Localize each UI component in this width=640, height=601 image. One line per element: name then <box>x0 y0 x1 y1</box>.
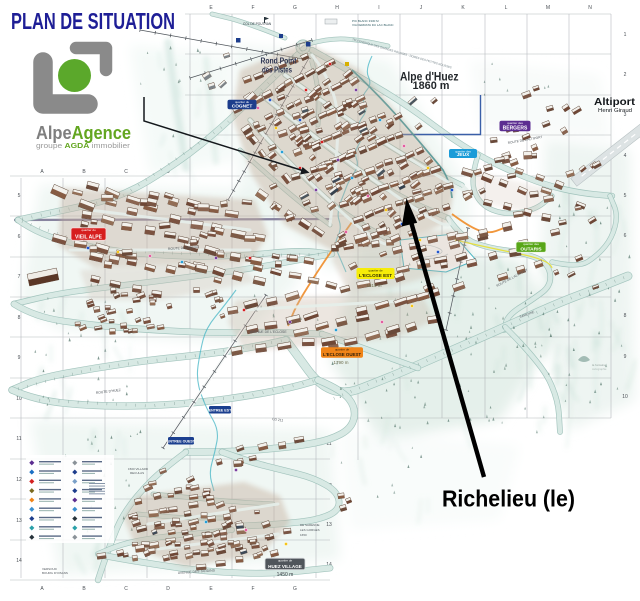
svg-text:N: N <box>588 5 592 11</box>
svg-text:5: 5 <box>624 193 627 199</box>
svg-text:AlpeAgence: AlpeAgence <box>36 123 131 143</box>
svg-text:quartier du: quartier du <box>81 228 96 232</box>
svg-text:F: F <box>251 5 254 11</box>
svg-text:VIA FERRATA DU LAC BLANC: VIA FERRATA DU LAC BLANC <box>352 23 394 27</box>
svg-text:Altiport: Altiport <box>594 97 636 108</box>
svg-text:1: 1 <box>624 32 627 38</box>
svg-text:VIEIL ALPE: VIEIL ALPE <box>75 234 103 240</box>
svg-text:6: 6 <box>18 234 21 240</box>
svg-text:14: 14 <box>16 558 22 564</box>
svg-text:1790 m: 1790 m <box>333 360 348 365</box>
svg-text:L: L <box>505 5 508 11</box>
svg-text:2: 2 <box>624 72 627 78</box>
svg-text:BERGERS: BERGERS <box>503 125 528 131</box>
svg-text:1650: 1650 <box>300 533 307 537</box>
svg-text:Rond Point: Rond Point <box>261 57 297 66</box>
svg-text:ENTREE EST: ENTREE EST <box>209 409 232 413</box>
svg-text:Henri Giraud: Henri Giraud <box>598 108 632 114</box>
svg-text:COL DE POUTRAN: COL DE POUTRAN <box>243 22 272 26</box>
svg-text:L'ECLOSE OUEST: L'ECLOSE OUEST <box>323 352 361 357</box>
svg-text:C: C <box>124 169 128 175</box>
svg-text:9: 9 <box>624 354 627 360</box>
svg-text:quartier de: quartier de <box>368 268 383 272</box>
svg-text:4: 4 <box>624 153 627 159</box>
svg-text:DE SARENNE: DE SARENNE <box>300 523 320 527</box>
svg-text:COGNET: COGNET <box>232 104 253 110</box>
svg-text:ENTREE OUEST: ENTREE OUEST <box>167 440 196 444</box>
svg-text:C: C <box>124 586 128 592</box>
svg-text:BOURG D'OISANS: BOURG D'OISANS <box>42 571 68 575</box>
svg-text:F: F <box>251 586 254 592</box>
svg-text:1450 m: 1450 m <box>277 572 294 578</box>
svg-text:quartier de: quartier de <box>278 559 293 563</box>
svg-text:10: 10 <box>622 394 628 400</box>
svg-text:RECULAS: RECULAS <box>130 471 144 475</box>
svg-text:8: 8 <box>18 315 21 321</box>
svg-text:L'ECLOSE EST: L'ECLOSE EST <box>359 273 392 278</box>
svg-text:des Pistes: des Pistes <box>262 66 292 75</box>
svg-text:I: I <box>378 5 379 11</box>
svg-text:groupe AGDA immobilier: groupe AGDA immobilier <box>36 143 131 150</box>
svg-text:AVENUE DE L'ECLOSE: AVENUE DE L'ECLOSE <box>250 330 287 334</box>
svg-text:9: 9 <box>18 355 21 361</box>
svg-text:6: 6 <box>624 233 627 239</box>
svg-text:12: 12 <box>16 477 22 483</box>
svg-text:quartier des: quartier des <box>523 242 539 246</box>
svg-text:1815 m: 1815 m <box>366 283 381 288</box>
svg-text:OUTARIS: OUTARIS <box>520 246 542 252</box>
svg-text:5: 5 <box>18 193 21 199</box>
svg-text:D: D <box>166 586 170 592</box>
svg-text:11: 11 <box>16 436 21 442</box>
svg-text:HUEZ VILLAGE: HUEZ VILLAGE <box>268 564 302 569</box>
svg-text:Richelieu (le): Richelieu (le) <box>442 486 575 512</box>
svg-text:13: 13 <box>16 518 22 524</box>
svg-text:G: G <box>293 5 297 11</box>
svg-text:LES GORGES: LES GORGES <box>300 528 320 532</box>
svg-text:8: 8 <box>624 313 627 319</box>
svg-text:cartographie: cartographie <box>592 367 607 371</box>
svg-text:M: M <box>546 5 550 11</box>
svg-text:7: 7 <box>18 274 21 280</box>
svg-text:PLAN DE SITUATION: PLAN DE SITUATION <box>11 8 175 34</box>
svg-text:JEUX: JEUX <box>457 152 470 158</box>
svg-text:13: 13 <box>326 522 332 528</box>
svg-text:1860 m: 1860 m <box>413 80 450 92</box>
svg-text:la fontaine: la fontaine <box>592 363 606 367</box>
svg-text:G: G <box>293 586 297 592</box>
svg-text:H: H <box>335 5 339 11</box>
